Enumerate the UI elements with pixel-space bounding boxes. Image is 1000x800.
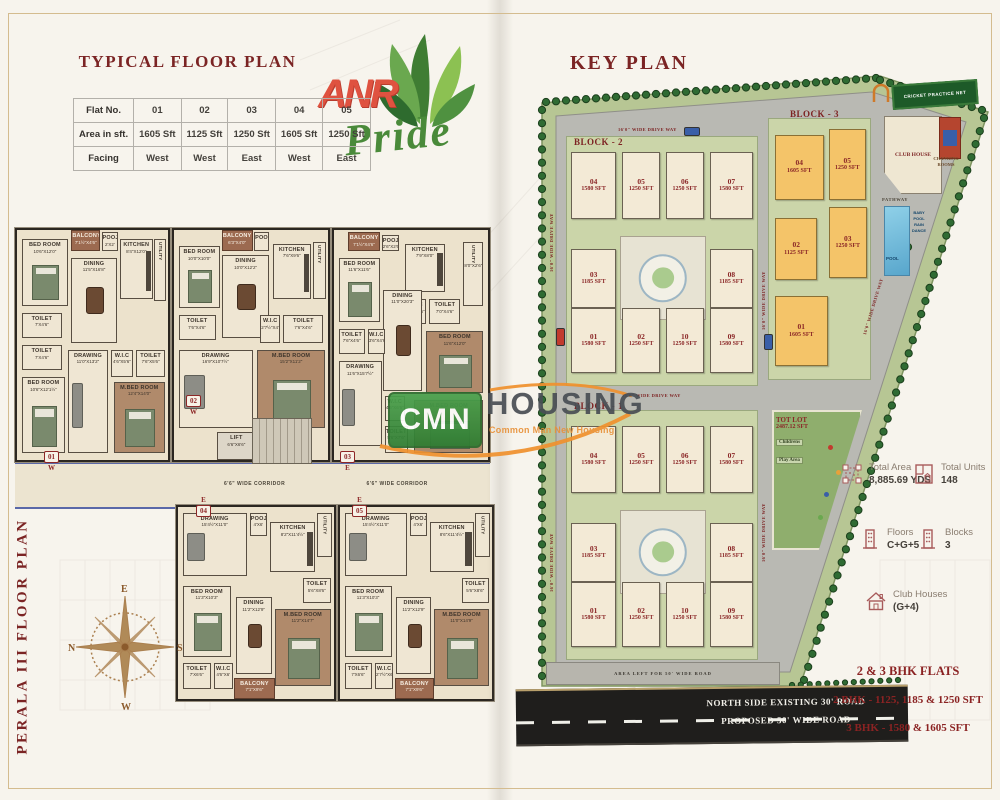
room-dining: DINING11'0"X20'3" [383, 290, 422, 391]
room-dims: 7'1"X9'6" [235, 687, 274, 692]
tree-icon [909, 337, 916, 344]
room-bed-room: BED ROOM11'6"X11'6" [339, 258, 381, 322]
building-icon [858, 527, 882, 556]
room-dims: 5'6"X8'6" [463, 588, 488, 593]
room-toilet: TOILET7'X4'6" [22, 313, 63, 338]
block-1-unit-08: 081185 SFT [710, 523, 754, 583]
tree-icon [860, 679, 865, 684]
room-label: BED ROOM [340, 261, 380, 268]
room-label: TOILET [340, 332, 364, 339]
tree-icon [901, 363, 908, 370]
stat-value: (G+4) [893, 602, 947, 613]
room-dims: 11'2"X12'9" [397, 607, 430, 612]
bed-furniture-icon [355, 613, 382, 651]
tree-icon [838, 559, 845, 566]
tree-icon [562, 97, 569, 104]
table-cell: West [275, 147, 322, 171]
play-equipment-icon [824, 492, 829, 497]
room-dims: 11'6"X11'6" [340, 267, 380, 272]
room-label: TOILET [346, 666, 371, 673]
unit-number: 07 [711, 451, 753, 461]
room-label: POOJA [411, 516, 426, 523]
tree-icon [538, 146, 545, 153]
tree-icon [542, 98, 549, 105]
room-label: KITCHEN [271, 525, 314, 532]
room-dims: 11'6"X12'0" [427, 341, 482, 346]
compass-rose: E N S W [68, 582, 183, 712]
stat-total-units: Total Units148 [912, 462, 985, 491]
room-dims: 2'6"X2'6" [383, 244, 398, 249]
unit-number: 05 [623, 177, 659, 187]
driveway-label-4: 16'0" WIDE DRIVE WAY [549, 533, 554, 592]
room-label: KITCHEN [121, 242, 152, 249]
room-label: W.I.C [261, 318, 279, 325]
cmn-housing-watermark: CMN HOUSING Common Man New Housing [372, 380, 640, 460]
room-dining: DINING11'5"X16'8" [71, 258, 116, 343]
unit-area: 1580 SFT [711, 186, 753, 194]
unit-area: 1580 SFT [572, 186, 616, 194]
room-label: BED ROOM [427, 334, 482, 341]
sofa-furniture-icon [72, 383, 84, 428]
tree-icon [672, 89, 679, 96]
block-3-unit-05: 051250 SFT [829, 129, 866, 199]
bed-furniture-icon [273, 380, 312, 422]
room-dims: 7'6"X4'6" [284, 325, 322, 330]
room-kitchen: KITCHEN8'4"X12'0" [120, 239, 153, 299]
tree-icon [742, 84, 749, 91]
stat-text: Blocks3 [945, 527, 973, 551]
room-balcony: BALCONY7'1"X9'6" [395, 678, 435, 699]
stat-text: Total Units148 [941, 462, 985, 486]
unit-number: 10 [667, 606, 703, 616]
cmn-logo-box: CMN [388, 392, 482, 448]
room-dims: 2'7½"X6'6" [376, 672, 392, 677]
driveway-label-1: 16'0" WIDE DRIVE WAY [618, 127, 677, 132]
tree-icon [939, 245, 946, 252]
room-dims: 2'7½"X4'6" [261, 325, 279, 330]
room-dims: 15'4½"X11'0" [184, 522, 246, 527]
tree-icon [538, 120, 545, 127]
table-row-header: Flat No. [74, 99, 134, 123]
stat-text: Club Houses(G+4) [893, 589, 947, 613]
room-label: UTILITY [158, 242, 163, 260]
room-dims: 12'4"X14'0" [115, 391, 164, 396]
unit-number: 02 [776, 240, 816, 250]
driveway-label-6: 16'0" WIDE DRIVE WAY [761, 503, 766, 562]
room-label: BALCONY [396, 681, 434, 688]
block-1-unit-03: 031185 SFT [571, 523, 617, 583]
table-cell: 1125 Sft [181, 123, 228, 147]
block-2-unit-05: 051250 SFT [622, 152, 660, 219]
room-label: BED ROOM [23, 242, 68, 249]
room-label: LIFT [218, 435, 255, 442]
brochure-spread: TYPICAL FLOOR PLAN PERALA III FLOOR PLAN… [0, 0, 1000, 800]
car-red-icon [556, 328, 565, 346]
tree-icon [918, 310, 925, 317]
room-dims: 7'6"X5'6" [137, 359, 164, 364]
flats-summary-2: 2 BHK - 1125, 1185 & 1250 SFT [816, 694, 1000, 706]
tree-icon [872, 454, 879, 461]
tree-icon [538, 106, 545, 113]
floor-unit-04: DRAWING15'4½"X11'0"POOJA4'X6'KITCHEN8'2"… [176, 505, 336, 701]
unit-number: 03 [572, 270, 616, 280]
room-m-bed-room: M.BED ROOM11'2"X14'7" [275, 609, 331, 686]
room-label: UTILITY [480, 516, 485, 534]
room-dims: 11'5"X16'8" [72, 267, 115, 272]
tree-icon [538, 304, 545, 311]
room-utility: UTILITY [317, 513, 333, 557]
stat-blocks: Blocks3 [916, 527, 973, 556]
tree-icon [805, 663, 812, 670]
unit-number: 01 [776, 322, 827, 332]
room-dims: 4'6"X5'6" [112, 359, 133, 364]
room-balcony: BALCONY7'1½"X4'6" [348, 232, 380, 250]
tree-icon [846, 533, 853, 540]
room-toilet: TOILET7'6"X4'6" [283, 315, 323, 343]
tree-icon [662, 90, 669, 97]
table-furniture-icon [248, 624, 262, 648]
bed-furniture-icon [194, 613, 222, 651]
room-kitchen: KITCHEN8'6"X11'4½" [430, 522, 474, 572]
tree-icon [592, 95, 599, 102]
room-dims: 10'6"X12'0" [23, 249, 68, 254]
bed-furniture-icon [188, 270, 212, 303]
tree-icon [834, 572, 841, 579]
tree-icon [538, 317, 545, 324]
marker-facing: W [190, 408, 197, 416]
room-toilet: TOILET5'6"X8'6" [303, 578, 331, 603]
block-2-pad: 041580 SFT051250 SFT061250 SFT071580 SFT… [566, 136, 758, 386]
room-w-i-c: W.I.C4'6"X6' [214, 663, 233, 690]
bed-furniture-icon [288, 638, 320, 679]
tree-icon [538, 330, 545, 337]
sofa-furniture-icon [349, 533, 367, 561]
play-equipment-icon [836, 470, 841, 475]
table-row-header: Facing [74, 147, 134, 171]
tree-icon [538, 199, 545, 206]
bed-furniture-icon [32, 265, 59, 301]
tree-icon [538, 225, 545, 232]
marker-number: 03 [340, 451, 355, 463]
room-dims: 10'0"X12'2" [223, 265, 269, 270]
room-w-i-c: W.I.C2'7½"X4'6" [260, 315, 280, 343]
room-label: POOJA [255, 235, 268, 242]
stat-label: Blocks [945, 527, 973, 538]
house-icon [864, 589, 888, 618]
room-label: UTILITY [317, 245, 322, 263]
unit-area: 1185 SFT [711, 553, 753, 561]
room-label: TOILET [284, 318, 322, 325]
tree-icon [968, 154, 975, 161]
tree-icon [732, 85, 739, 92]
tree-icon [538, 554, 545, 561]
compass-e: E [121, 584, 128, 595]
room-m-bed-room: M.BED ROOM15'2"X11'2" [257, 350, 325, 428]
unit-area: 1580 SFT [572, 615, 616, 623]
room-dims: 15'4½"X11'0" [346, 522, 406, 527]
unit-area: 1580 SFT [572, 460, 616, 468]
table-furniture-icon [396, 325, 411, 357]
sofa-furniture-icon [342, 389, 355, 426]
tree-icon [538, 672, 545, 679]
tree-icon [722, 85, 729, 92]
tree-icon [538, 488, 545, 495]
room-label: W.I.C [112, 353, 133, 360]
unit-area: 1250 SFT [667, 460, 703, 468]
tree-icon [538, 251, 545, 258]
room-pooja: POOJA4'X6' [410, 513, 427, 536]
room-bed-room: BED ROOM10'6"X12'0" [22, 239, 69, 306]
room-balcony: BALCONY6'3"X4'0" [222, 230, 253, 251]
unit-marker-01: 01W [44, 450, 59, 472]
tree-icon [582, 96, 589, 103]
side-label: PERALA III FLOOR PLAN [15, 487, 32, 787]
room-dims: 7'1½"X4'6" [349, 242, 379, 247]
stat-floors: FloorsC+G+5 [858, 527, 919, 556]
tree-icon [612, 93, 619, 100]
tree-icon [897, 376, 904, 383]
tree-icon [538, 370, 545, 377]
table-cell: West [181, 147, 228, 171]
room-bed-room: BED ROOM11'3"X10'3" [345, 586, 392, 657]
unit-area: 1125 SFT [776, 250, 816, 258]
tree-icon [976, 128, 983, 135]
tree-icon [960, 180, 967, 187]
car-blue-2-icon [684, 127, 700, 136]
unit-number: 08 [711, 544, 753, 554]
tree-icon [682, 88, 689, 95]
tree-icon [869, 679, 874, 684]
block-3-unit-02: 021125 SFT [775, 218, 817, 280]
room-toilet: TOILET7'X6'6" [345, 663, 372, 690]
floor-unit-01: BED ROOM10'6"X12'0"BALCONY7'1½"X4'6"POOJ… [15, 228, 170, 462]
room-label: BED ROOM [23, 380, 65, 387]
room-dims: 7'1"X9'6" [396, 687, 434, 692]
stat-label: Floors [887, 527, 919, 538]
block-2-unit-02: 021250 SFT [622, 308, 660, 372]
room-dims: 11'3"X10'3" [346, 595, 391, 600]
room-label: DINING [397, 600, 430, 607]
table-furniture-icon [408, 624, 422, 648]
unit-number: 09 [711, 332, 753, 342]
room-dims: 7'1½"X4'6" [72, 240, 99, 245]
block-2-unit-10: 101250 SFT [666, 308, 704, 372]
stat-label: Total Units [941, 462, 985, 473]
floor-unit-05: DRAWING15'4½"X11'0"POOJA4'X6'KITCHEN8'6"… [338, 505, 494, 701]
room-bed-room: BED ROOM10'0"X10'0" [179, 246, 221, 308]
block-1-unit-06: 061250 SFT [666, 426, 704, 493]
tree-icon [947, 219, 954, 226]
unit-marker-02: 02W [186, 394, 201, 416]
tree-icon [852, 76, 859, 83]
room-toilet: TOILET7'6"X5'6" [136, 350, 165, 378]
tree-icon [821, 611, 828, 618]
tree-icon [851, 520, 858, 527]
room-pooja: POOJA [254, 232, 269, 250]
corridor: 6'6" WIDE CORRIDOR 6'6" WIDE CORRIDOR [15, 462, 490, 509]
room-w-i-c: W.I.C3'6"X4'6" [368, 329, 385, 354]
room-label: KITCHEN [274, 247, 311, 254]
block-2-label: BLOCK - 2 [574, 137, 623, 147]
room-label: TOILET [23, 316, 62, 323]
tree-icon [538, 607, 545, 614]
bed-furniture-icon [447, 638, 479, 679]
tree-icon [538, 343, 545, 350]
marker-number: 05 [352, 505, 367, 517]
tree-icon [538, 528, 545, 535]
room-label: TOILET [23, 348, 62, 355]
tree-icon [762, 82, 769, 89]
room-label: W.I.C [369, 332, 384, 339]
room-label: KITCHEN [431, 525, 473, 532]
room-label: BALCONY [349, 235, 379, 242]
room-toilet: TOILET7'X4'6" [22, 345, 63, 370]
table-row-header: Area in sft. [74, 123, 134, 147]
watermark-tagline: Common Man New Housing [489, 425, 615, 435]
room-m-bed-room: M.BED ROOM11'0"X14'9" [434, 609, 489, 686]
unit-marker-04: E04 [196, 496, 211, 518]
swimming-pool: POOL [884, 206, 910, 276]
flats-summary-3: 3 BHK - 1580 & 1605 SFT [816, 722, 1000, 734]
tree-icon [538, 278, 545, 285]
room-label: TOILET [463, 581, 488, 588]
tree-icon [817, 624, 824, 631]
block-1-unit-10: 101250 SFT [666, 582, 704, 646]
flats-summary-1: 2 & 3 BHK FLATS [816, 664, 1000, 679]
room-dims: 11'6"X15'7½" [340, 371, 381, 376]
room-label: DINING [72, 261, 115, 268]
room-balcony: BALCONY7'1"X9'6" [234, 678, 275, 699]
unit-area: 1250 SFT [623, 341, 659, 349]
room-lift: LIFT6'6"X6'6" [217, 432, 256, 460]
marker-number: 01 [44, 451, 59, 463]
tree-icon [538, 646, 545, 653]
compass-w: W [121, 702, 131, 712]
counter-furniture-icon [304, 254, 310, 291]
room-label: DINING [223, 258, 269, 265]
stairs [252, 418, 312, 464]
room-bed-room: BED ROOM11'3"X10'3" [183, 586, 231, 657]
tree-icon [538, 172, 545, 179]
counter-furniture-icon [307, 532, 314, 566]
room-pooja: POOJA2'X2' [102, 232, 119, 250]
unit-area: 1250 SFT [830, 165, 865, 173]
stat-label: Club Houses [893, 589, 947, 600]
club-house: CLUB HOUSE [884, 116, 942, 194]
tree-icon [830, 585, 837, 592]
right-page-title: KEY PLAN [570, 52, 688, 75]
counter-furniture-icon [437, 253, 443, 285]
room-label: UTILITY [471, 245, 476, 263]
table-furniture-icon [86, 287, 104, 314]
table-cell: 05 [323, 99, 370, 123]
block-3-unit-03: 031250 SFT [829, 207, 867, 277]
room-label: TOILET [304, 581, 330, 588]
tree-icon [826, 598, 833, 605]
table-cell: East [323, 147, 370, 171]
room-utility: UTILITY8'0"X2'6" [463, 242, 483, 306]
pool-label: POOL [886, 256, 899, 261]
room-dims: 11'2"X12'9" [237, 607, 271, 612]
room-dims: 15'2"X11'2" [258, 359, 324, 364]
block-3-pad: 041605 SFT051250 SFT021125 SFT031250 SFT… [768, 118, 871, 380]
tree-icon [538, 580, 545, 587]
stat-text: FloorsC+G+5 [887, 527, 919, 551]
unit-area: 1250 SFT [667, 186, 703, 194]
unit-number: 03 [572, 544, 616, 554]
tree-icon [893, 389, 900, 396]
car-blue-icon [764, 334, 773, 350]
tree-icon [978, 106, 985, 113]
tree-icon [712, 86, 719, 93]
driveway-label-3: 16'0" WIDE DRIVE WAY [549, 213, 554, 272]
room-dims: 11'0"X13'2" [69, 359, 106, 364]
room-dims: 6'6"X6'6" [218, 442, 255, 447]
tree-icon [792, 80, 799, 87]
room-dims: 6'3"X4'0" [223, 240, 252, 245]
unit-area: 1250 SFT [667, 615, 703, 623]
room-label: BALCONY [223, 233, 252, 240]
bed-furniture-icon [125, 409, 155, 447]
tree-icon [980, 114, 987, 121]
sofa-furniture-icon [187, 533, 205, 561]
block-2-unit-08: 081185 SFT [710, 249, 754, 309]
tree-icon [538, 514, 545, 521]
room-dining: DINING11'2"X12'9" [236, 597, 272, 674]
room-label: M.BED ROOM [258, 353, 324, 360]
tree-icon [876, 441, 883, 448]
tree-icon [538, 462, 545, 469]
cmn-logo-text: CMN [399, 403, 470, 437]
room-dims: 11'0"X20'3" [384, 299, 421, 304]
room-toilet: TOILET7'0"X4'6" [429, 299, 460, 324]
play-equipment-icon [828, 445, 833, 450]
bed-furniture-icon [32, 406, 57, 446]
room-label: M.BED ROOM [435, 612, 488, 619]
room-dims: 10'6"X12'1½" [23, 387, 65, 392]
tree-icon [572, 96, 579, 103]
room-label: TOILET [430, 302, 459, 309]
room-dims: 5'6"X8'6" [304, 588, 330, 593]
unit-number: 04 [776, 158, 822, 168]
room-label: BED ROOM [184, 589, 230, 596]
tree-icon [859, 493, 866, 500]
room-drawing: DRAWING11'0"X13'2" [68, 350, 107, 454]
marker-facing: W [48, 464, 55, 472]
block-3-unit-04: 041605 SFT [775, 135, 823, 200]
room-drawing: DRAWING15'4½"X11'0" [183, 513, 247, 576]
room-dims: 7'0"X4'6" [430, 309, 459, 314]
unit-area: 1250 SFT [623, 615, 659, 623]
room-dims: 16'9"X10'7½" [180, 359, 252, 364]
tree-icon [538, 593, 545, 600]
room-label: TOILET [180, 318, 215, 325]
baby-pool-label: BABY POOL RAIN DANCE [909, 210, 929, 234]
tree-icon [884, 415, 891, 422]
tree-icon [538, 159, 545, 166]
table-cell: 02 [181, 99, 228, 123]
housing-text: HOUSING [486, 386, 645, 422]
unit-area: 1185 SFT [711, 279, 753, 287]
room-pooja: POOJA2'6"X2'6" [382, 235, 399, 251]
room-label: POOJA [251, 516, 266, 523]
marker-number: 02 [186, 395, 201, 407]
road-reserve-strip: AREA LEFT FOR 50' WIDE ROAD [546, 662, 780, 685]
unit-number: 06 [667, 177, 703, 187]
unit-number: 03 [830, 234, 866, 244]
room-dims: 10'0"X10'0" [180, 256, 220, 261]
block-2-unit-04: 041580 SFT [571, 152, 617, 219]
